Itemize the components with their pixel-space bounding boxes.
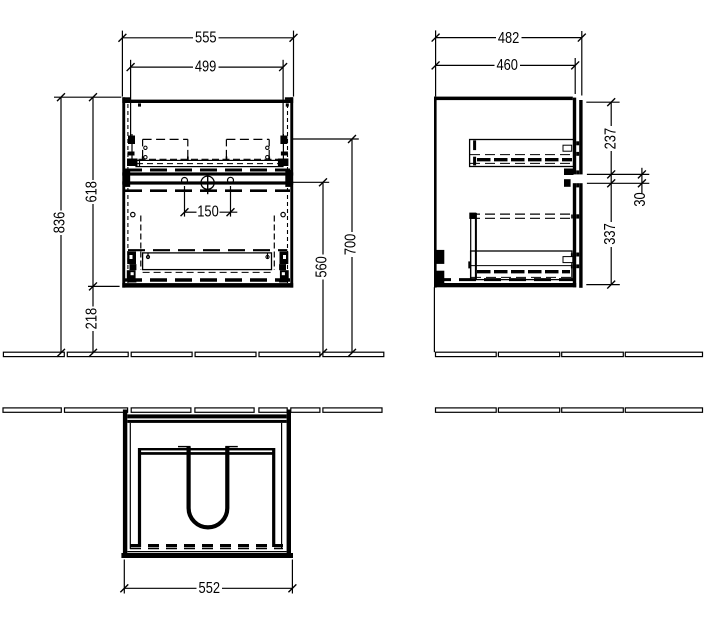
svg-text:618: 618 [84,181,101,203]
svg-text:560: 560 [314,256,331,278]
svg-text:482: 482 [498,30,520,47]
svg-text:237: 237 [602,128,619,150]
svg-text:499: 499 [195,59,217,76]
svg-text:218: 218 [84,308,101,330]
svg-text:552: 552 [199,580,221,597]
svg-text:836: 836 [52,212,69,234]
svg-text:150: 150 [197,204,219,221]
svg-text:555: 555 [195,29,217,46]
svg-text:700: 700 [343,233,360,255]
svg-text:337: 337 [602,223,619,245]
svg-text:460: 460 [496,57,518,74]
svg-text:30: 30 [632,192,649,207]
